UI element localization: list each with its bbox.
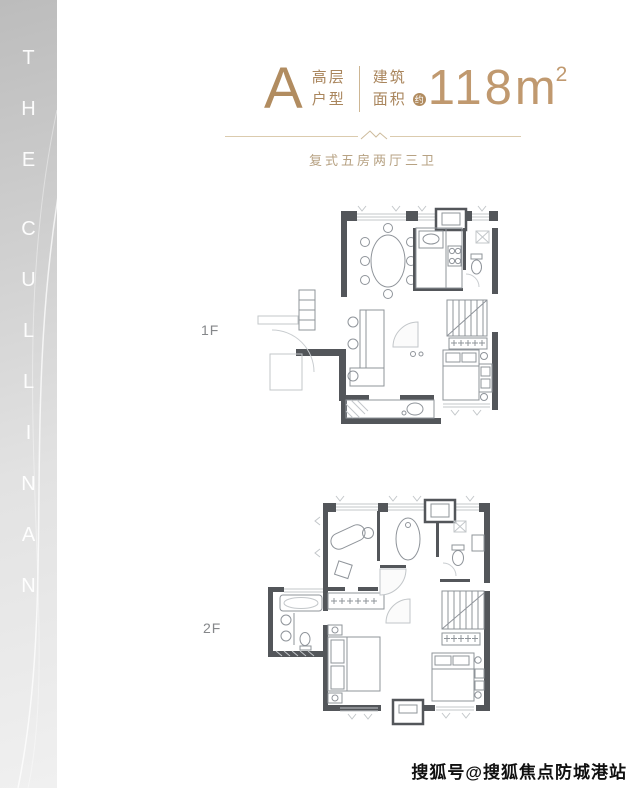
stairs-1f: [447, 300, 487, 336]
brand-letter: N: [21, 576, 35, 596]
duct-2f: [393, 700, 423, 724]
bedroom-bottom-left: [328, 625, 380, 719]
brand-letter: N: [21, 474, 35, 494]
brand-letter: T: [22, 48, 34, 68]
unit-type-label: 高层 户型: [312, 67, 346, 111]
area-value: 118: [428, 65, 515, 112]
plan-header: A 高层 户型 建筑 面积 约 118 m 2: [264, 62, 567, 115]
area-unit: m: [515, 65, 556, 112]
bathroom-1f: [463, 228, 489, 287]
area-label-line1: 建筑: [373, 67, 407, 89]
mountain-ornament-icon: [358, 128, 390, 142]
wardrobe-2f: [328, 593, 384, 609]
hall-door: [393, 322, 423, 357]
brand-letter: I: [26, 423, 32, 443]
ac-unit-2f: [425, 500, 455, 522]
entry-1f: [258, 290, 315, 390]
middle-bath: [396, 518, 420, 560]
dining-table: [361, 224, 416, 299]
approx-text: 约: [415, 93, 424, 106]
brand-letter: C: [21, 219, 35, 239]
floorplan-page: T H E C U L L I N A N A 高层 户型 建筑 面积 约 11…: [0, 0, 630, 788]
brand-sidebar: T H E C U L L I N A N: [0, 0, 57, 788]
bathroom-top-right: [443, 521, 484, 576]
floorplan-2f: [260, 493, 512, 727]
ac-unit-1f: [436, 209, 466, 230]
bedroom-1f: [443, 350, 492, 415]
bedroom-top-left: [328, 522, 373, 578]
watermark: 搜狐号@搜狐焦点防城港站: [411, 758, 627, 783]
unit-type-line1: 高层: [312, 67, 346, 89]
approx-badge: 约: [413, 93, 426, 106]
area-label-line2: 面积: [373, 89, 407, 111]
balcony-1f: [346, 400, 434, 418]
closet-2f: [442, 633, 480, 645]
closet-1f: [449, 338, 487, 349]
brand-letter: L: [23, 372, 34, 392]
brand-letter: U: [21, 270, 35, 290]
floor-label-2f: 2F: [203, 620, 221, 636]
floor-label-1f: 1F: [201, 322, 219, 338]
area-label: 建筑 面积: [373, 67, 407, 111]
floorplan-1f: [250, 204, 518, 426]
header-vertical-divider: [359, 66, 360, 112]
unit-type-line2: 户型: [312, 89, 346, 111]
bathroom-left: [268, 587, 324, 657]
brand-letter: L: [23, 321, 34, 341]
kitchen: [413, 228, 463, 291]
layout-subtitle: 复式五房两厅三卫: [225, 150, 521, 169]
area-value-group: 118 m 2: [428, 65, 568, 112]
stairs-2f: [442, 591, 484, 629]
brand-letter: A: [22, 525, 35, 545]
brand-vertical-text: T H E C U L L I N A N: [0, 48, 57, 596]
brand-letter: H: [21, 99, 35, 119]
study-desk: [348, 310, 384, 386]
brand-letter: E: [22, 150, 35, 170]
unit-type-letter: A: [264, 62, 303, 115]
area-exponent: 2: [556, 64, 568, 85]
